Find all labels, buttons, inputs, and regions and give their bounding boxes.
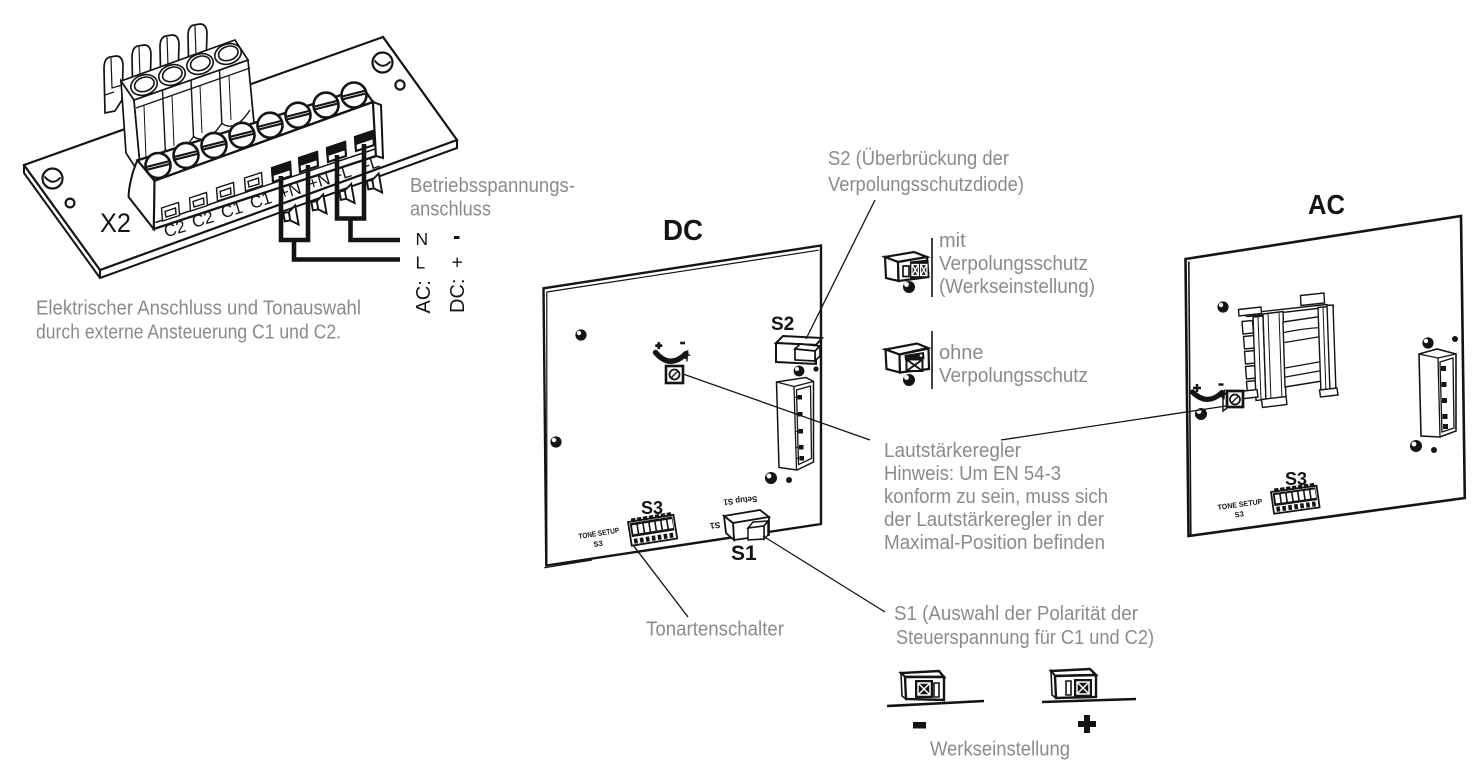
svg-text:ohne: ohne <box>939 342 984 364</box>
svg-text:AC: AC <box>1308 189 1345 220</box>
svg-text:der Lautstärkeregler in der: der Lautstärkeregler in der <box>884 509 1104 531</box>
svg-text:Hinweis: Um EN 54-3: Hinweis: Um EN 54-3 <box>884 463 1061 485</box>
svg-text:Tonartenschalter: Tonartenschalter <box>646 619 784 641</box>
svg-text:S1: S1 <box>709 520 721 531</box>
svg-text:Elektrischer Anschluss und Ton: Elektrischer Anschluss und Tonauswahl <box>36 298 361 320</box>
svg-text:S2 (Überbrückung der: S2 (Überbrückung der <box>828 148 1009 170</box>
svg-text:+: + <box>452 252 463 274</box>
svg-text:N: N <box>416 229 429 249</box>
svg-text:anschluss: anschluss <box>410 199 491 221</box>
svg-text:S3: S3 <box>1234 509 1244 519</box>
svg-text:Verpolungsschutzdiode): Verpolungsschutzdiode) <box>828 174 1024 196</box>
svg-text:DC:: DC: <box>447 279 469 313</box>
svg-text:S3: S3 <box>641 498 663 518</box>
svg-text:AC:: AC: <box>413 280 435 313</box>
svg-text:konform zu sein, muss sich: konform zu sein, muss sich <box>884 486 1108 508</box>
svg-text:durch externe Ansteuerung C1 u: durch externe Ansteuerung C1 und C2. <box>36 322 341 344</box>
svg-text:(Werkseinstellung): (Werkseinstellung) <box>939 276 1095 298</box>
svg-text:L: L <box>416 253 426 273</box>
svg-text:DC: DC <box>663 215 703 247</box>
svg-text:Steuerspannung für C1 und C2): Steuerspannung für C1 und C2) <box>896 627 1154 649</box>
svg-text:Lautstärkeregler: Lautstärkeregler <box>884 440 1021 462</box>
svg-text:S1 (Auswahl der Polarität der: S1 (Auswahl der Polarität der <box>894 603 1138 625</box>
svg-text:Maximal-Position befinden: Maximal-Position befinden <box>884 532 1105 554</box>
svg-text:Werkseinstellung: Werkseinstellung <box>930 739 1070 761</box>
svg-text:Verpolungsschutz: Verpolungsschutz <box>939 253 1088 275</box>
svg-text:Betriebsspannungs-: Betriebsspannungs- <box>410 175 575 197</box>
svg-text:Verpolungsschutz: Verpolungsschutz <box>939 365 1088 387</box>
svg-text:mit: mit <box>939 230 966 252</box>
svg-text:S3: S3 <box>593 539 603 549</box>
svg-text:S1: S1 <box>731 542 757 565</box>
svg-text:X2: X2 <box>100 208 131 238</box>
svg-text:S2: S2 <box>771 314 794 335</box>
